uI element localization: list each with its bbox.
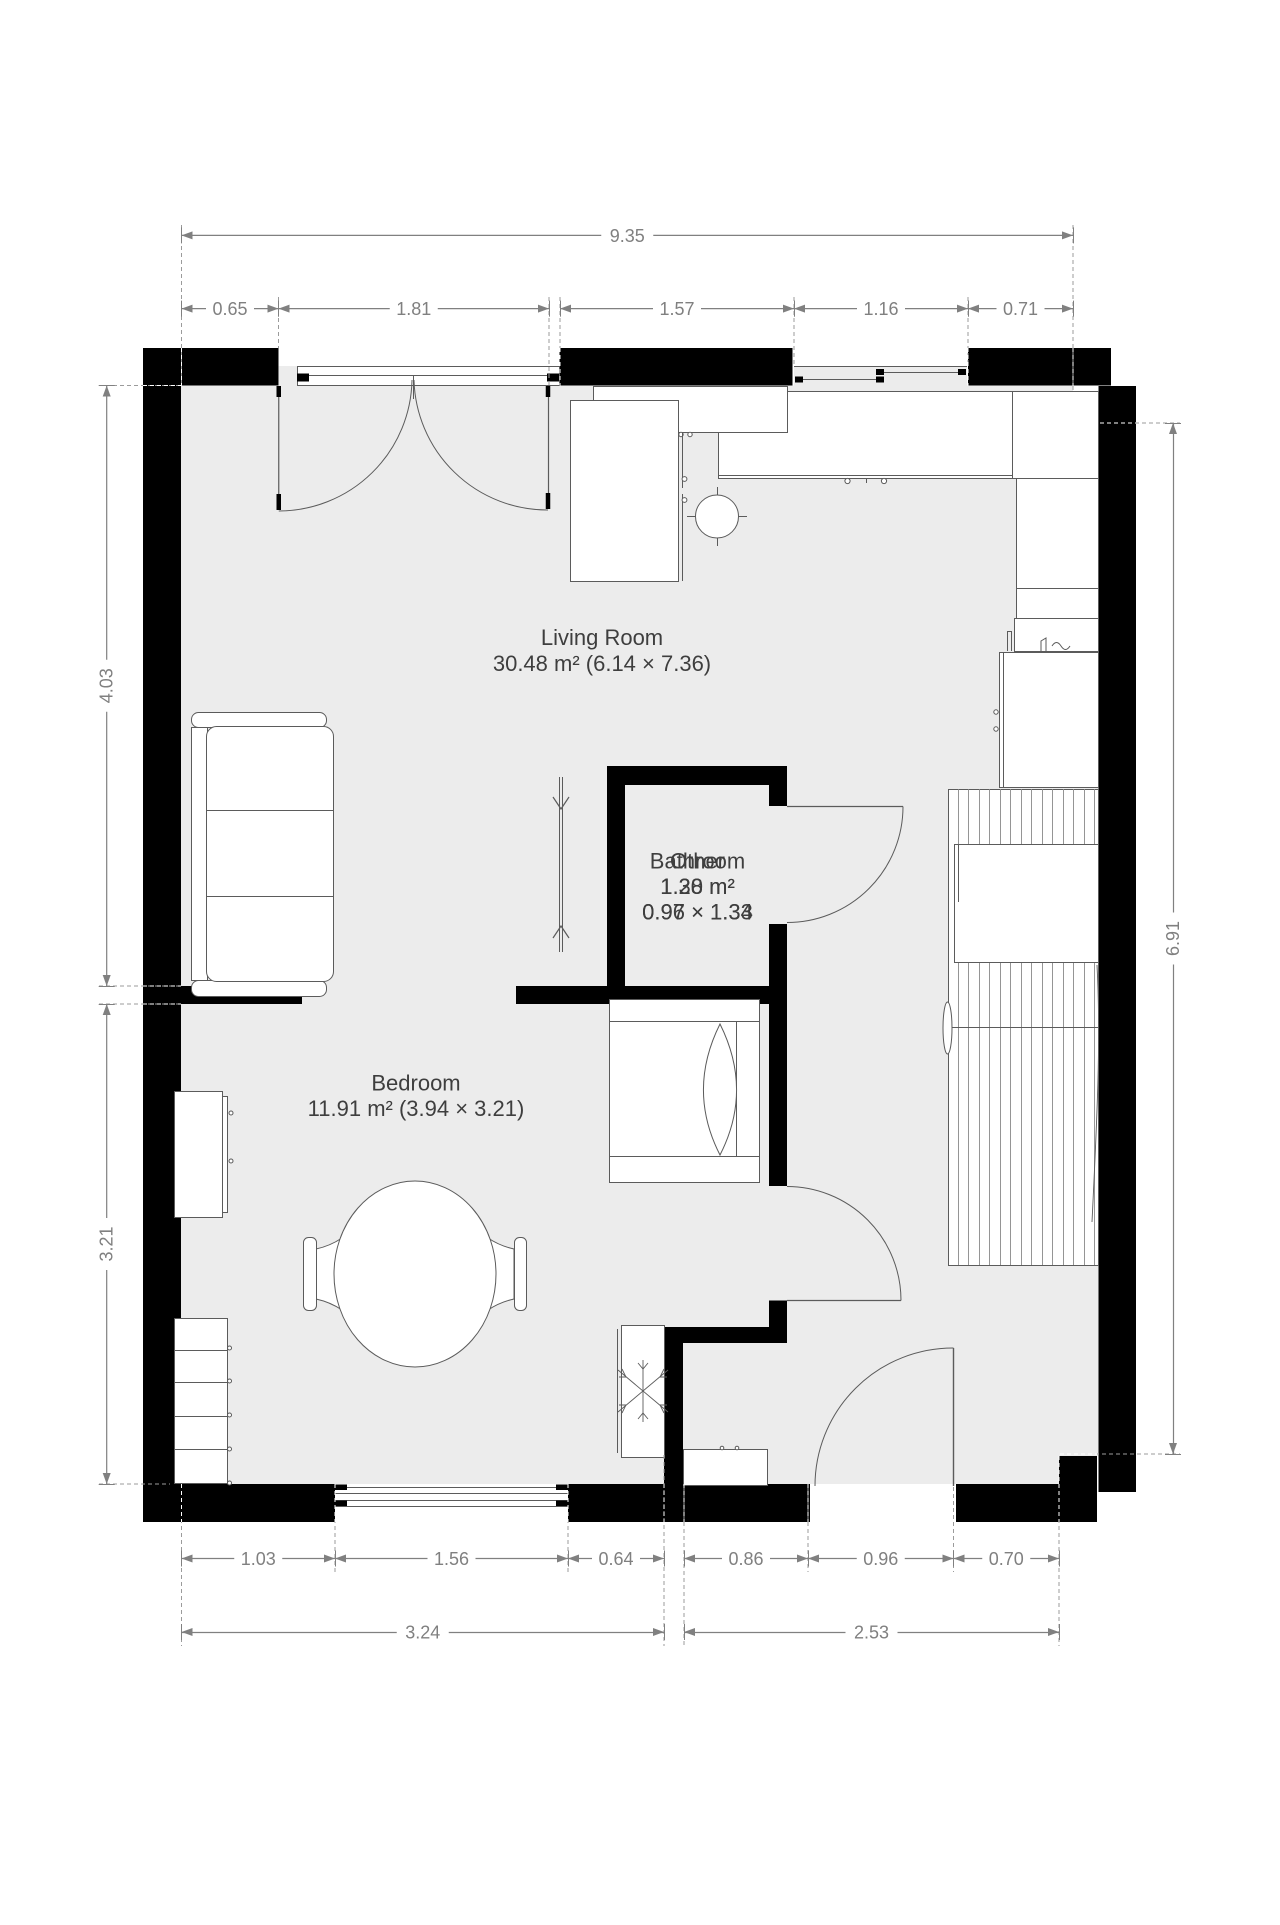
svg-text:Bedroom: Bedroom [371,1071,460,1096]
svg-text:0.86: 0.86 [728,1549,763,1569]
svg-text:6.91: 6.91 [1163,921,1183,956]
svg-text:30.48 m² (6.14 × 7.36): 30.48 m² (6.14 × 7.36) [493,651,711,676]
svg-text:2.53: 2.53 [854,1623,889,1643]
svg-text:11.91 m² (3.94 × 3.21): 11.91 m² (3.94 × 3.21) [308,1096,525,1121]
svg-text:Living Room: Living Room [541,625,663,650]
svg-text:0.71: 0.71 [1003,299,1038,319]
svg-text:1.57: 1.57 [659,299,694,319]
svg-text:9.35: 9.35 [610,226,645,246]
svg-text:1.16: 1.16 [863,299,898,319]
svg-text:0.96 × 1.33: 0.96 × 1.33 [642,900,753,925]
svg-text:4.03: 4.03 [97,668,117,703]
svg-text:3.21: 3.21 [97,1226,117,1261]
svg-text:1.56: 1.56 [434,1549,469,1569]
svg-text:0.96: 0.96 [863,1549,898,1569]
svg-text:1.28 m²: 1.28 m² [660,874,735,899]
svg-text:1.03: 1.03 [241,1549,276,1569]
svg-text:1.81: 1.81 [396,299,431,319]
svg-text:0.64: 0.64 [598,1549,633,1569]
svg-text:0.70: 0.70 [989,1549,1024,1569]
svg-text:3.24: 3.24 [405,1623,440,1643]
svg-text:0.65: 0.65 [212,299,247,319]
svg-text:Other: Other [670,849,725,874]
